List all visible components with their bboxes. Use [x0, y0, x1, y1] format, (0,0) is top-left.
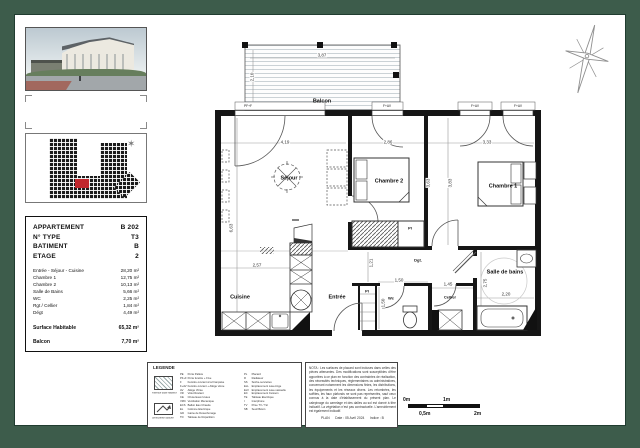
windows: [235, 102, 535, 116]
scale-segment: [426, 404, 444, 408]
bedroom2-furniture: [352, 158, 424, 247]
bathroom-fixtures: [360, 250, 537, 330]
scale-1m: 1m: [443, 397, 450, 403]
balcony: [242, 42, 400, 110]
scale-segment: [444, 404, 480, 408]
kitchen-fixtures: [222, 243, 312, 330]
plan-sheet-canvas: ✶ APPARTEMENT B 202 N° TYPE T3 BATIMENT …: [0, 0, 640, 448]
scale-0m: 0m: [403, 397, 410, 403]
scale-05m: 0,5m: [419, 411, 430, 417]
tile-hatch-swatch-icon: [154, 376, 173, 390]
bedroom1-furniture: [478, 162, 536, 206]
slope-arrow-swatch-icon: [154, 403, 173, 415]
nota-footer: PLAN Date : 05 Avril 2024 Indice : B: [309, 416, 396, 420]
plan-type: PLAN: [321, 416, 330, 420]
scale-bar: 0m 1m 0,5m 2m: [400, 394, 490, 422]
plan-date: Date : 05 Avril 2024: [335, 416, 364, 420]
swatch-caption: Sens pente douche: [152, 417, 177, 420]
swatch-caption: Faïence toute hauteur: [152, 392, 177, 395]
scale-2m: 2m: [474, 411, 481, 417]
north-compass-icon: [558, 22, 614, 102]
legend-entry: SBSeuil Béton: [244, 408, 301, 412]
scale-segment: [408, 404, 426, 408]
nota-box: NOTA : Les surfaces de placard sont incl…: [305, 362, 398, 428]
nota-text: NOTA : Les surfaces de placard sont incl…: [309, 366, 396, 414]
legend-title: LEGENDE: [153, 366, 175, 371]
legend-box: LEGENDE Faïence toute hauteur Sens pente…: [147, 362, 302, 428]
legend-entry: TDTableau de Répartition: [180, 416, 240, 420]
plan-indice: Indice : B: [370, 416, 384, 420]
